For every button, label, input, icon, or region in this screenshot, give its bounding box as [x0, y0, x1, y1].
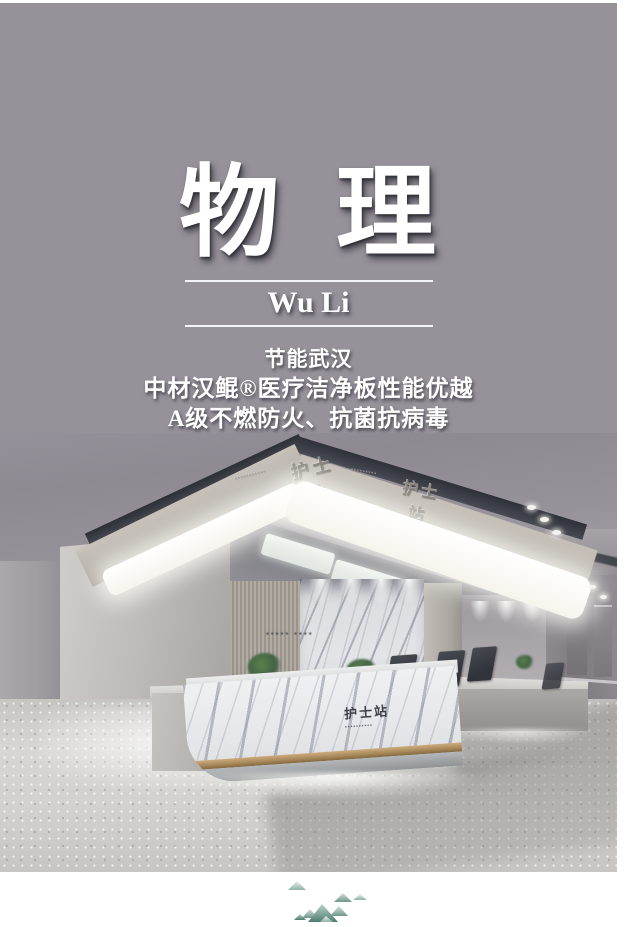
page: 物 理 Wu Li 节能武汉 中材汉鲲®医疗洁净板性能优越 A级不燃防火、抗菌抗… — [0, 0, 627, 927]
downlight-scallop — [394, 579, 424, 633]
downlight-icon — [589, 585, 596, 589]
downlight-icon — [552, 530, 561, 535]
wall-slogan: ▪▪▪▪▪ ▪▪▪▪ — [266, 629, 396, 638]
downlight-scallop — [468, 601, 492, 645]
reception-photo: ▪▪▪▪▪ ▪▪▪▪ 护士站 ▪▪▪▪▪▪▪▪▪▪▪ 护士站 ▪▪▪▪▪▪▪▪▪ — [0, 433, 617, 872]
plant — [516, 655, 534, 669]
distant-wall — [0, 561, 64, 711]
tagline-line-3: A级不燃防火、抗菌抗病毒 — [0, 404, 617, 433]
divider-top — [185, 280, 433, 282]
downlight-scallop — [366, 579, 396, 633]
downlight-scallop — [494, 601, 518, 645]
long-counter — [454, 689, 588, 731]
counter-underglow — [196, 773, 476, 799]
divider-bottom — [185, 325, 433, 327]
romanized-title: Wu Li — [0, 286, 617, 320]
tagline-line-1: 节能武汉 — [0, 344, 617, 374]
downlight-scallop — [336, 579, 366, 633]
poster-title: 物 理 — [0, 131, 617, 276]
counter-underglow — [450, 729, 590, 743]
reception-desk: 护士站 ▪▪▪▪▪▪▪▪▪▪ — [183, 666, 463, 785]
downlight-icon — [527, 505, 536, 510]
footer — [0, 872, 627, 927]
downlight-scallop — [306, 579, 336, 633]
corridor-door — [594, 605, 612, 677]
mountains-icon — [250, 876, 382, 924]
downlight-icon — [600, 595, 607, 599]
desk-sign-caption: ▪▪▪▪▪▪▪▪▪▪ — [345, 724, 373, 731]
poster-background: 物 理 Wu Li 节能武汉 中材汉鲲®医疗洁净板性能优越 A级不燃防火、抗菌抗… — [0, 3, 617, 872]
tagline-block: 节能武汉 中材汉鲲®医疗洁净板性能优越 A级不燃防火、抗菌抗病毒 — [0, 344, 617, 433]
desk-sign-label: 护士站 — [343, 700, 389, 722]
tagline-line-2: 中材汉鲲®医疗洁净板性能优越 — [0, 374, 617, 404]
downlight-icon — [540, 517, 549, 522]
